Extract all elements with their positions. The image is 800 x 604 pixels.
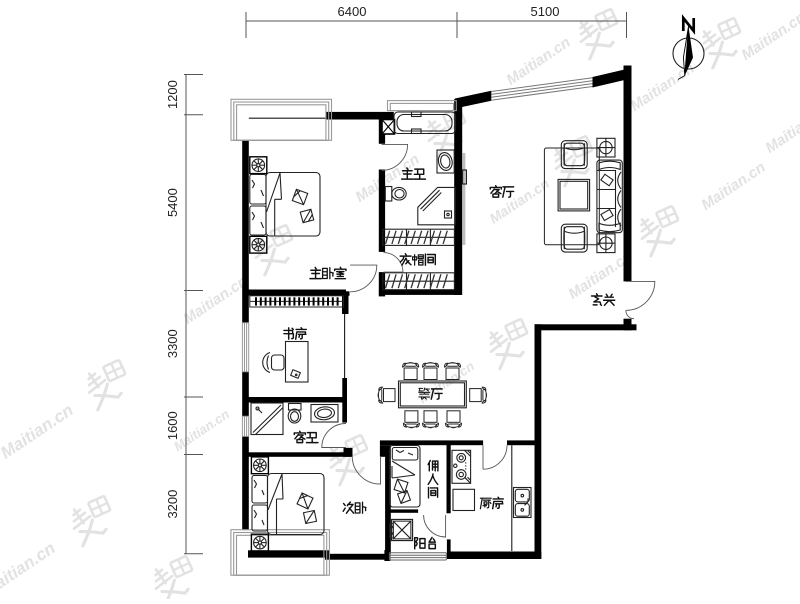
- svg-text:1200: 1200: [165, 80, 180, 109]
- svg-text:6400: 6400: [338, 4, 367, 19]
- svg-text:3200: 3200: [165, 490, 180, 519]
- svg-text:5400: 5400: [165, 188, 180, 217]
- svg-text:3300: 3300: [165, 329, 180, 358]
- svg-text:1600: 1600: [165, 411, 180, 440]
- svg-text:5100: 5100: [531, 4, 560, 19]
